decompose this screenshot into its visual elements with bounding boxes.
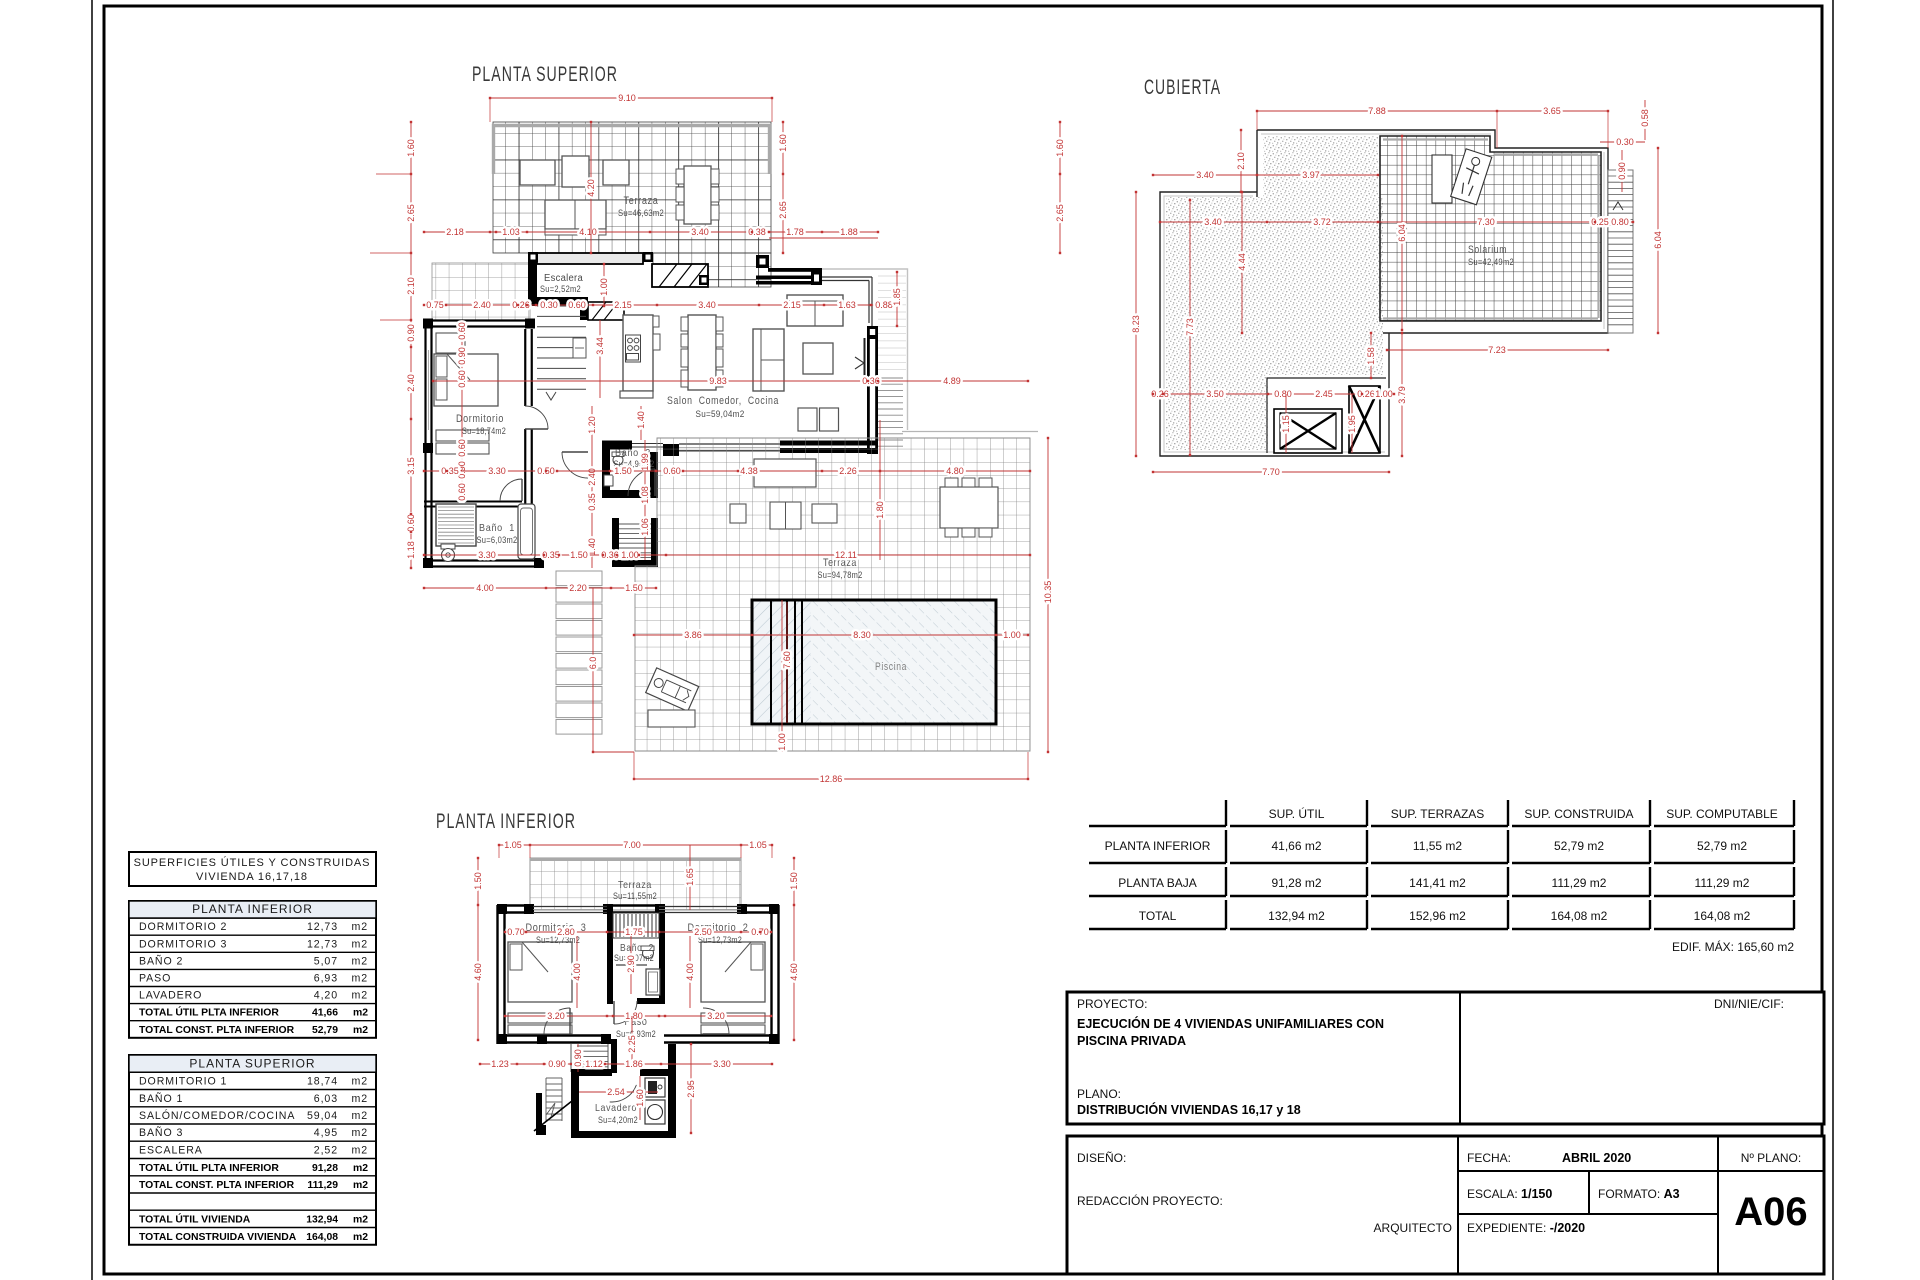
- svg-text:DISEÑO:: DISEÑO:: [1077, 1151, 1126, 1165]
- svg-text:164,08: 164,08: [306, 1232, 338, 1243]
- svg-text:6,03: 6,03: [314, 1093, 338, 1105]
- svg-text:141,41 m2: 141,41 m2: [1409, 876, 1466, 890]
- svg-text:5,07: 5,07: [314, 955, 338, 967]
- svg-text:TOTAL CONST. PLTA INFERIOR: TOTAL CONST. PLTA INFERIOR: [139, 1180, 295, 1191]
- svg-text:m2: m2: [351, 955, 368, 967]
- svg-text:152,96 m2: 152,96 m2: [1409, 909, 1466, 923]
- svg-text:52,79: 52,79: [312, 1025, 338, 1036]
- svg-text:ESCALERA: ESCALERA: [139, 1145, 203, 1157]
- svg-text:18,74: 18,74: [307, 1076, 338, 1088]
- svg-text:TOTAL ÚTIL VIVIENDA: TOTAL ÚTIL VIVIENDA: [139, 1213, 251, 1226]
- svg-text:m2: m2: [353, 1025, 368, 1036]
- svg-text:2,52: 2,52: [314, 1145, 338, 1157]
- svg-text:PISCINA PRIVADA: PISCINA PRIVADA: [1077, 1034, 1186, 1048]
- svg-text:SUP. ÚTIL: SUP. ÚTIL: [1269, 806, 1325, 821]
- svg-text:111,29: 111,29: [307, 1180, 338, 1191]
- svg-text:m2: m2: [351, 990, 368, 1002]
- svg-text:52,79 m2: 52,79 m2: [1554, 839, 1604, 853]
- svg-text:164,08 m2: 164,08 m2: [1694, 909, 1751, 923]
- svg-text:m2: m2: [351, 938, 368, 950]
- svg-text:TOTAL ÚTIL PLTA INFERIOR: TOTAL ÚTIL PLTA INFERIOR: [139, 1161, 279, 1174]
- svg-text:SUPERFICIES ÚTILES Y CONSTRUID: SUPERFICIES ÚTILES Y CONSTRUIDAS: [134, 856, 371, 869]
- svg-text:TOTAL CONSTRUIDA VIVIENDA: TOTAL CONSTRUIDA VIVIENDA: [139, 1232, 297, 1243]
- svg-text:m2: m2: [353, 1180, 368, 1191]
- svg-text:111,29 m2: 111,29 m2: [1552, 876, 1607, 890]
- svg-text:SUP. COMPUTABLE: SUP. COMPUTABLE: [1666, 807, 1778, 821]
- svg-text:m2: m2: [351, 1076, 368, 1088]
- svg-text:FORMATO: A3: FORMATO: A3: [1598, 1187, 1680, 1201]
- svg-text:PLANTA BAJA: PLANTA BAJA: [1118, 876, 1196, 890]
- svg-text:PROYECTO:: PROYECTO:: [1077, 997, 1147, 1011]
- svg-text:132,94 m2: 132,94 m2: [1268, 909, 1325, 923]
- svg-text:m2: m2: [353, 1008, 368, 1019]
- svg-text:41,66 m2: 41,66 m2: [1271, 839, 1321, 853]
- svg-text:DNI/NIE/CIF:: DNI/NIE/CIF:: [1714, 997, 1784, 1011]
- svg-text:m2: m2: [351, 973, 368, 985]
- svg-text:m2: m2: [351, 1110, 368, 1122]
- svg-text:TOTAL: TOTAL: [1139, 909, 1177, 923]
- svg-text:DORMITORIO 1: DORMITORIO 1: [139, 1076, 227, 1088]
- svg-text:SUP. TERRAZAS: SUP. TERRAZAS: [1391, 807, 1485, 821]
- svg-text:164,08 m2: 164,08 m2: [1551, 909, 1608, 923]
- svg-text:TOTAL CONST. PLTA INFERIOR: TOTAL CONST. PLTA INFERIOR: [139, 1025, 295, 1036]
- svg-text:4,20: 4,20: [314, 990, 338, 1002]
- svg-text:VIVIENDA 16,17,18: VIVIENDA 16,17,18: [196, 871, 308, 883]
- svg-text:m2: m2: [351, 1093, 368, 1105]
- svg-text:ESCALA: 1/150: ESCALA: 1/150: [1467, 1187, 1552, 1201]
- svg-text:12,73: 12,73: [307, 921, 338, 933]
- svg-text:BAÑO 1: BAÑO 1: [139, 1092, 183, 1105]
- svg-text:DORMITORIO 2: DORMITORIO 2: [139, 921, 227, 933]
- svg-text:DISTRIBUCIÓN VIVIENDAS 16,17 y: DISTRIBUCIÓN VIVIENDAS 16,17 y 18: [1077, 1102, 1301, 1117]
- svg-text:59,04: 59,04: [307, 1110, 338, 1122]
- svg-text:PLANTA SUPERIOR: PLANTA SUPERIOR: [189, 1056, 315, 1070]
- svg-text:BAÑO 2: BAÑO 2: [139, 954, 183, 967]
- svg-text:SALÓN/COMEDOR/COCINA: SALÓN/COMEDOR/COCINA: [139, 1109, 295, 1122]
- svg-text:Nº PLANO:: Nº PLANO:: [1741, 1151, 1801, 1165]
- svg-text:ABRIL 2020: ABRIL 2020: [1562, 1151, 1631, 1165]
- svg-text:m2: m2: [353, 1163, 368, 1174]
- svg-text:91,28 m2: 91,28 m2: [1271, 876, 1321, 890]
- svg-text:11,55 m2: 11,55 m2: [1413, 839, 1462, 853]
- svg-text:m2: m2: [353, 1215, 368, 1226]
- svg-text:LAVADERO: LAVADERO: [139, 990, 202, 1002]
- svg-text:PLANTA INFERIOR: PLANTA INFERIOR: [1105, 839, 1211, 853]
- svg-text:TOTAL ÚTIL PLTA INFERIOR: TOTAL ÚTIL PLTA INFERIOR: [139, 1006, 279, 1019]
- svg-text:PLANTA INFERIOR: PLANTA INFERIOR: [192, 902, 313, 916]
- svg-text:DORMITORIO 3: DORMITORIO 3: [139, 938, 227, 950]
- svg-text:PLANO:: PLANO:: [1077, 1087, 1121, 1101]
- svg-text:m2: m2: [351, 1145, 368, 1157]
- svg-text:SUP. CONSTRUIDA: SUP. CONSTRUIDA: [1524, 807, 1633, 821]
- svg-text:A06: A06: [1734, 1190, 1807, 1234]
- svg-text:m2: m2: [351, 921, 368, 933]
- svg-text:12,73: 12,73: [307, 938, 338, 950]
- svg-text:6,93: 6,93: [314, 973, 338, 985]
- svg-text:52,79 m2: 52,79 m2: [1697, 839, 1747, 853]
- svg-text:EXPEDIENTE: -/2020: EXPEDIENTE: -/2020: [1467, 1221, 1585, 1235]
- svg-text:m2: m2: [353, 1232, 368, 1243]
- svg-text:41,66: 41,66: [312, 1008, 338, 1019]
- svg-text:BAÑO 3: BAÑO 3: [139, 1126, 183, 1139]
- svg-text:REDACCIÓN PROYECTO:: REDACCIÓN PROYECTO:: [1077, 1193, 1223, 1208]
- svg-text:EDIF. MÁX: 165,60 m2: EDIF. MÁX: 165,60 m2: [1672, 939, 1794, 954]
- svg-text:132,94: 132,94: [306, 1215, 338, 1226]
- svg-text:91,28: 91,28: [312, 1163, 338, 1174]
- svg-text:111,29 m2: 111,29 m2: [1695, 876, 1750, 890]
- svg-text:PASO: PASO: [139, 973, 171, 985]
- svg-text:m2: m2: [351, 1127, 368, 1139]
- svg-text:FECHA:: FECHA:: [1467, 1151, 1511, 1165]
- svg-text:4,95: 4,95: [314, 1127, 338, 1139]
- svg-text:EJECUCIÓN DE 4 VIVIENDAS UNIFA: EJECUCIÓN DE 4 VIVIENDAS UNIFAMILIARES C…: [1077, 1016, 1384, 1031]
- svg-text:ARQUITECTO: ARQUITECTO: [1374, 1221, 1452, 1235]
